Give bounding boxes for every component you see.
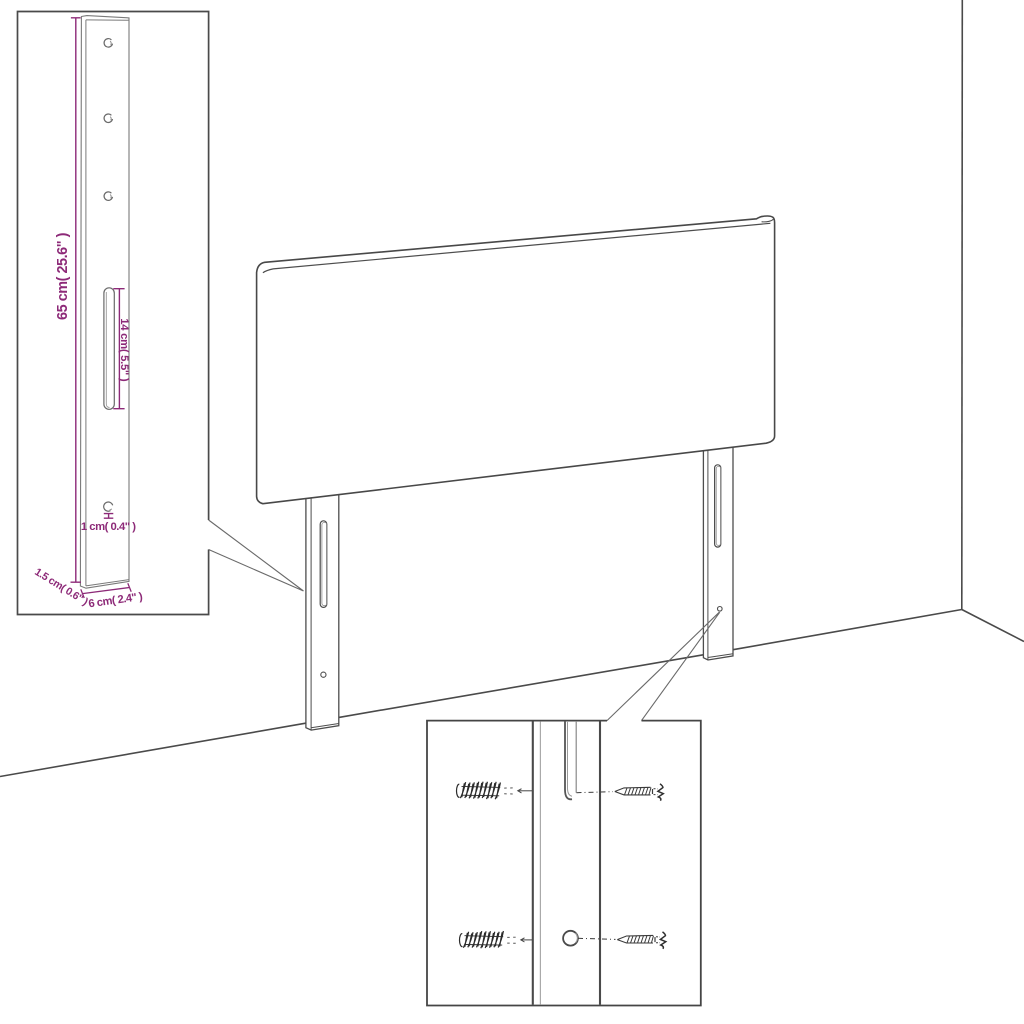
svg-text:14 cm( 5.5" ): 14 cm( 5.5" ) xyxy=(118,318,130,382)
svg-text:65 cm( 25.6" ): 65 cm( 25.6" ) xyxy=(55,232,71,320)
svg-text:1 cm( 0.4" ): 1 cm( 0.4" ) xyxy=(81,521,136,533)
